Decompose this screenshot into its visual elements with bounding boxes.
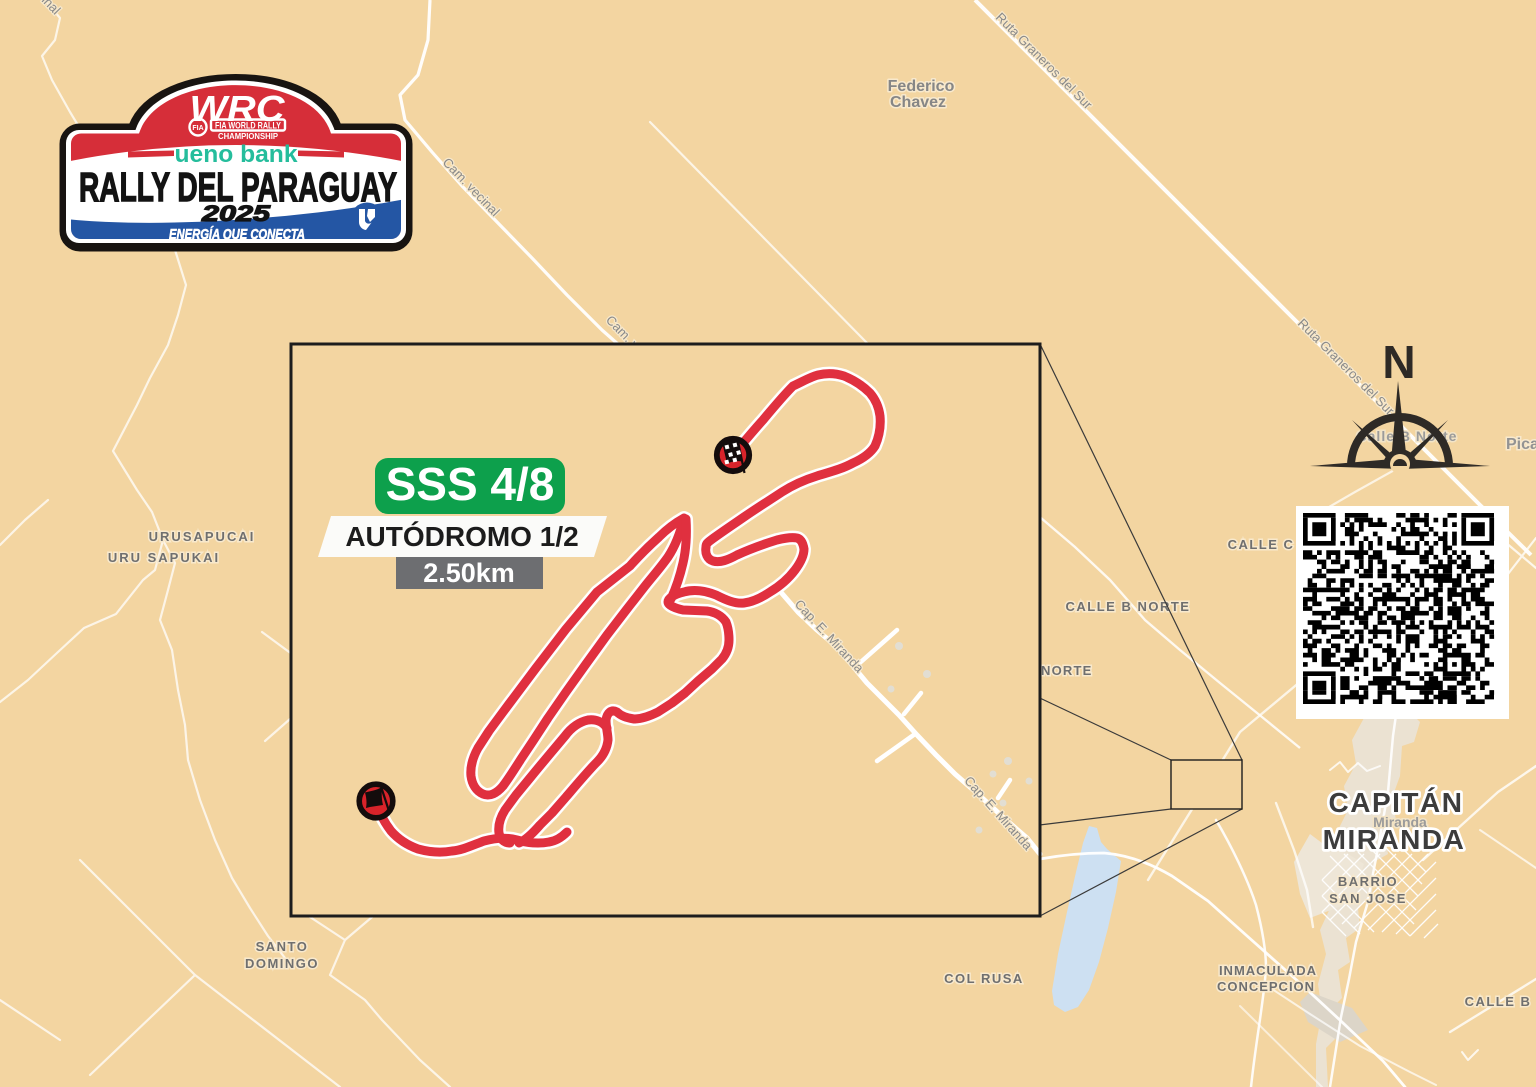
- svg-text:MIRANDA: MIRANDA: [1323, 824, 1466, 855]
- svg-text:SSS 4/8: SSS 4/8: [386, 458, 555, 510]
- svg-text:AUTÓDROMO 1/2: AUTÓDROMO 1/2: [345, 521, 578, 552]
- svg-text:URUSAPUCAI: URUSAPUCAI: [149, 529, 256, 544]
- svg-text:N: N: [1382, 336, 1415, 388]
- svg-text:CONCEPCION: CONCEPCION: [1217, 979, 1315, 994]
- svg-text:ENERGÍA QUE CONECTA: ENERGÍA QUE CONECTA: [169, 226, 305, 243]
- svg-text:CALLE C: CALLE C: [1228, 537, 1295, 552]
- svg-text:CAPITÁN: CAPITÁN: [1329, 787, 1464, 818]
- svg-text:CALLE B: CALLE B: [1465, 994, 1532, 1009]
- svg-text:2025: 2025: [201, 201, 271, 226]
- svg-text:2.50km: 2.50km: [423, 558, 515, 588]
- svg-text:FIA: FIA: [192, 125, 203, 132]
- svg-text:BARRIO: BARRIO: [1338, 874, 1398, 889]
- svg-text:Federico: Federico: [888, 78, 955, 95]
- svg-text:INMACULADA: INMACULADA: [1219, 963, 1317, 978]
- svg-text:URU SAPUKAI: URU SAPUKAI: [108, 550, 220, 565]
- svg-text:SAN JOSE: SAN JOSE: [1329, 891, 1407, 906]
- svg-text:NORTE: NORTE: [1041, 663, 1093, 678]
- svg-text:SANTO: SANTO: [256, 939, 309, 954]
- svg-text:Pica: Pica: [1506, 436, 1536, 453]
- svg-text:CHAMPIONSHIP: CHAMPIONSHIP: [218, 132, 279, 141]
- svg-text:FIA WORLD RALLY: FIA WORLD RALLY: [215, 121, 281, 131]
- svg-text:DOMINGO: DOMINGO: [245, 956, 319, 971]
- svg-text:COL RUSA: COL RUSA: [944, 971, 1024, 986]
- svg-text:Chavez: Chavez: [890, 94, 946, 111]
- svg-text:CALLE B NORTE: CALLE B NORTE: [1066, 599, 1191, 614]
